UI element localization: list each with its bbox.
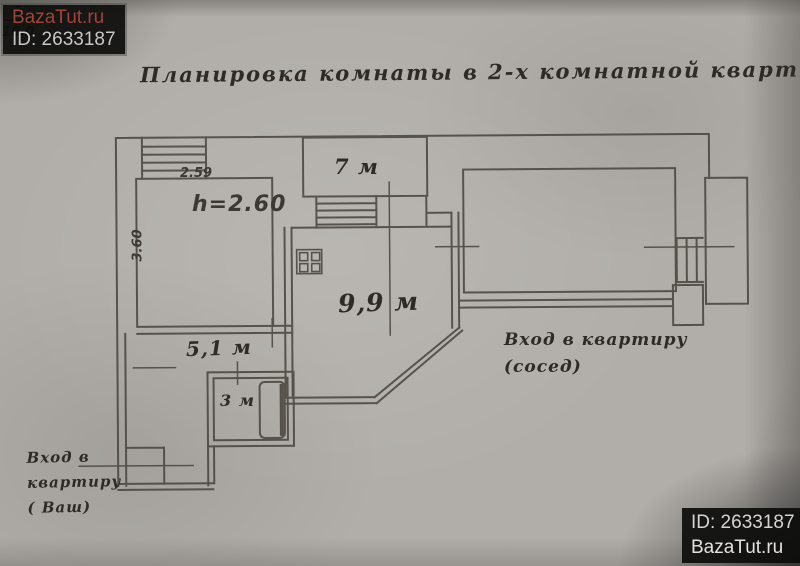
- hallway-area-label: 5,1 м: [186, 335, 253, 361]
- page-title: Планировка комнаты в 2-х комнатной кварт…: [140, 58, 670, 88]
- entry-vestibule-neighbor: [673, 285, 703, 325]
- watermark-top-left: BazaTut.ru ID: 2633187: [3, 5, 125, 54]
- watermark-site-name: BazaTut.ru: [691, 535, 798, 560]
- entrance-own-line2: квартиру: [27, 472, 122, 492]
- room1-depth-dimension: 3.60: [131, 229, 146, 261]
- entrance-own-line1: Вход в: [26, 448, 89, 467]
- window-hatch-kitchen: [316, 196, 376, 227]
- watermark-site-name: BazaTut.ru: [12, 7, 116, 29]
- watermark-listing-id: ID: 2633187: [691, 510, 798, 535]
- bathtub-icon: [260, 382, 285, 438]
- window-hatch-neighbor: [677, 238, 703, 282]
- entrance-own-label: Вход в квартиру ( Ваш): [26, 444, 122, 521]
- balcony-area-label: 7 м: [334, 154, 379, 179]
- door-ticks: [77, 180, 735, 467]
- balcony-right: [705, 178, 748, 304]
- corridor-walls: [459, 299, 673, 307]
- entrance-neighbor-label: Вход в квартиру (сосед): [504, 327, 688, 381]
- watermark-listing-id: ID: 2633187: [12, 29, 116, 51]
- entrance-neighbor-line1: Вход в квартиру: [504, 330, 688, 350]
- kitchen-area-label: 9,9 м: [338, 287, 420, 319]
- ceiling-height-label: h=2.60: [192, 192, 286, 217]
- entrance-own-line3: ( Ваш): [27, 498, 91, 517]
- floorplan-photo: Планировка комнаты в 2-х комнатной кварт…: [0, 0, 800, 566]
- bathroom-area-label: 3 м: [220, 391, 255, 410]
- watermark-bottom-right: ID: 2633187 BazaTut.ru: [682, 508, 800, 563]
- stove-icon: [297, 250, 322, 274]
- room1-width-dimension: 2.59: [180, 166, 212, 181]
- neighbor-room-walls: [463, 168, 676, 292]
- entrance-neighbor-line2: (сосед): [504, 357, 582, 377]
